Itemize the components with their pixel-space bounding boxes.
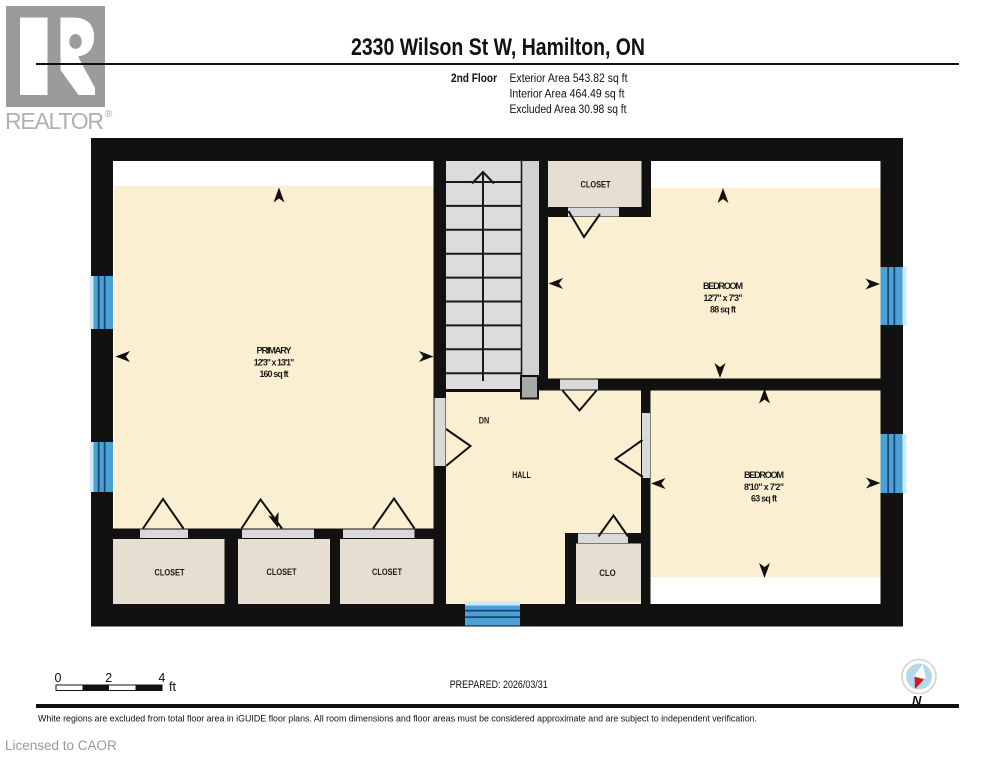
svg-text:DN: DN xyxy=(479,415,490,425)
svg-text:0: 0 xyxy=(55,671,62,685)
svg-text:CLOSET: CLOSET xyxy=(267,567,297,577)
svg-text:88 sq ft: 88 sq ft xyxy=(710,305,736,315)
svg-text:160 sq ft: 160 sq ft xyxy=(260,369,289,379)
svg-text:12'7" x 7'3": 12'7" x 7'3" xyxy=(704,293,743,303)
svg-text:CLOSET: CLOSET xyxy=(581,180,611,190)
svg-text:White regions are excluded fro: White regions are excluded from total fl… xyxy=(38,714,757,725)
svg-text:CLO: CLO xyxy=(599,568,616,578)
svg-text:12'3" x 13'1": 12'3" x 13'1" xyxy=(254,358,295,368)
svg-text:ft: ft xyxy=(169,680,176,694)
svg-text:CLOSET: CLOSET xyxy=(155,568,185,578)
svg-text:8'10" x 7'2": 8'10" x 7'2" xyxy=(744,482,784,492)
svg-text:BEDROOM: BEDROOM xyxy=(744,470,784,480)
svg-text:2: 2 xyxy=(105,671,112,685)
svg-text:PREPARED: 2026/03/31: PREPARED: 2026/03/31 xyxy=(450,679,548,691)
svg-text:BEDROOM: BEDROOM xyxy=(703,281,743,291)
svg-text:CLOSET: CLOSET xyxy=(372,567,402,577)
svg-text:63 sq ft: 63 sq ft xyxy=(751,494,777,504)
svg-text:PRIMARY: PRIMARY xyxy=(257,346,292,356)
svg-text:4: 4 xyxy=(158,671,165,685)
svg-text:HALL: HALL xyxy=(512,470,531,480)
